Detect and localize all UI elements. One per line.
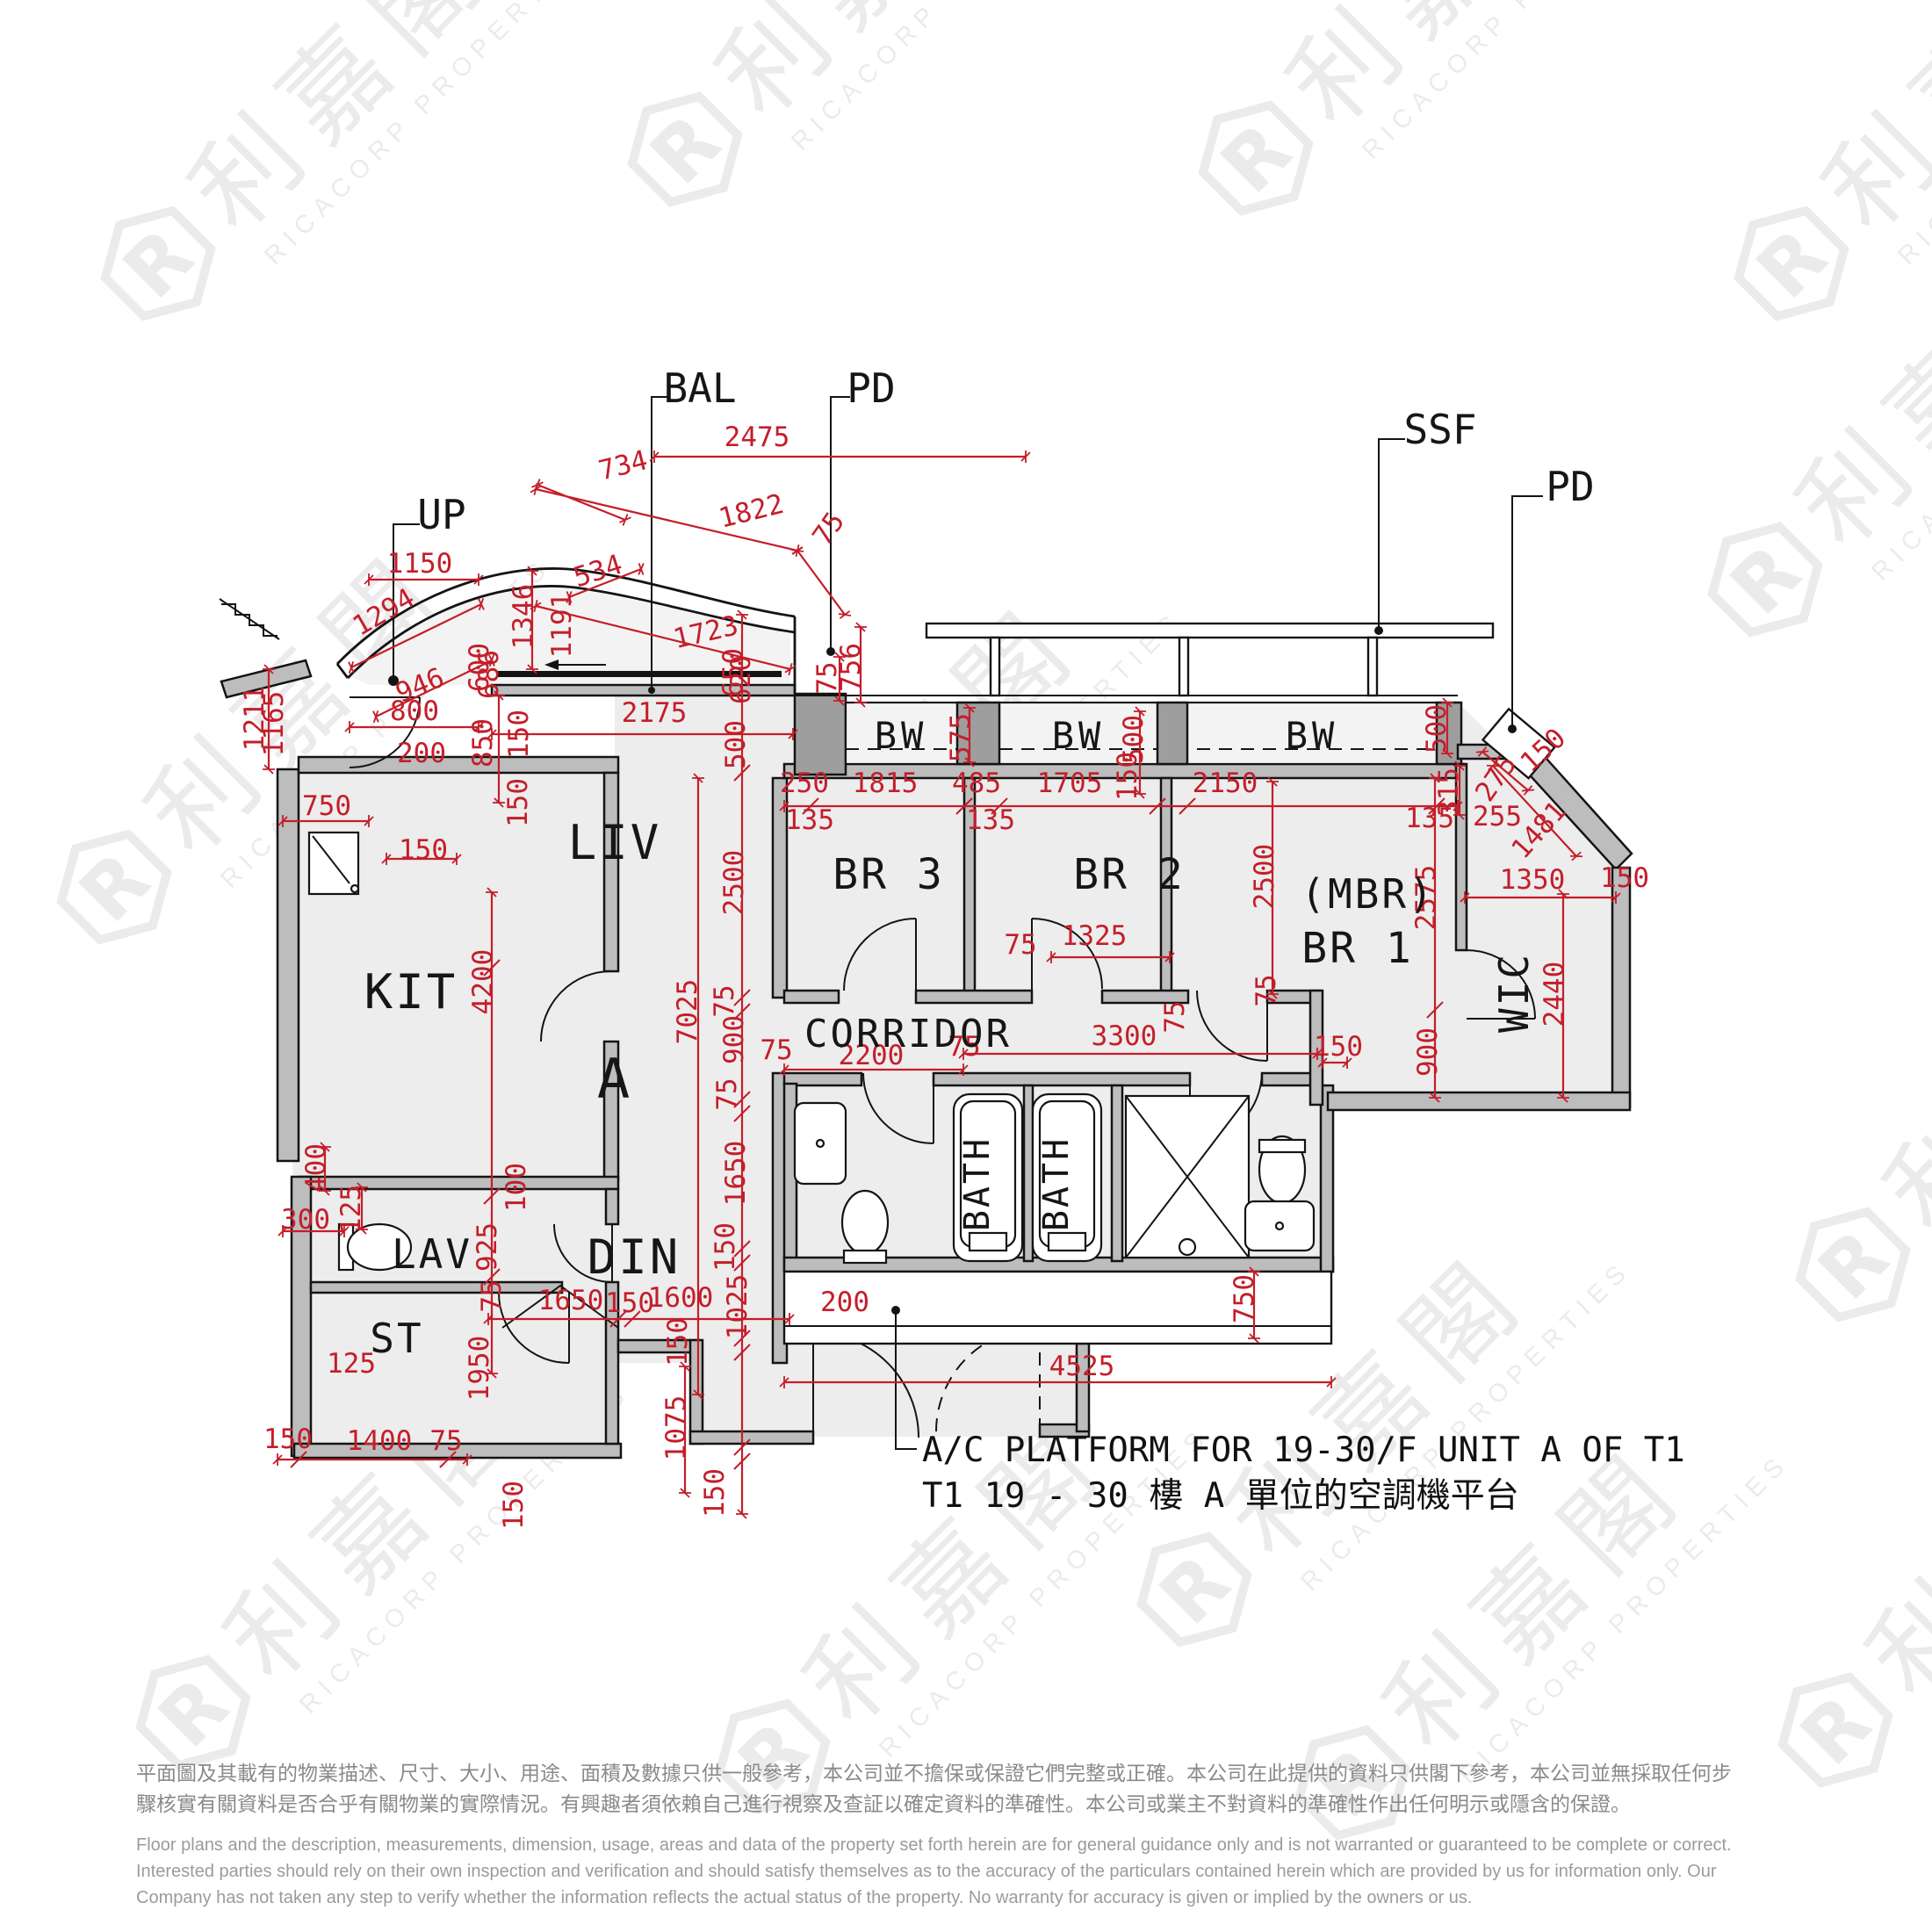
room-lav: LAV: [392, 1230, 472, 1278]
dimension-label: 900: [718, 1015, 750, 1064]
dimension-label: 1650: [538, 1285, 604, 1316]
dimension-label: 150: [1600, 862, 1649, 894]
dimension-label: 2440: [1539, 962, 1570, 1027]
room-br1: BR 1: [1301, 924, 1414, 973]
dimension-label: 734: [595, 444, 651, 487]
dimension-label: 800: [390, 696, 439, 727]
room-br3: BR 3: [833, 850, 945, 899]
dimension-label: 150: [498, 1481, 530, 1530]
label-pd-right: PD: [1546, 463, 1594, 510]
floorplan-svg: R 利嘉閣 RICACORP PROPERTIES: [0, 0, 1932, 1932]
dimension-label: 1150: [387, 548, 453, 580]
dimension-label: 125: [327, 1348, 376, 1380]
dimension-label: 150: [399, 834, 448, 866]
dimension-label: 686: [473, 650, 505, 699]
dimension-label: 900: [1412, 1027, 1444, 1077]
dimension-label: 4525: [1049, 1351, 1115, 1382]
dimension-label: 150: [699, 1468, 731, 1517]
dimension-label: 620: [725, 655, 757, 704]
dimension-label: 756: [835, 643, 867, 692]
room-wic: WIC: [1490, 952, 1538, 1033]
label-bal: BAL: [663, 364, 736, 412]
dimension-label: 1350: [1500, 864, 1566, 896]
dimension-label: 75: [1251, 974, 1282, 1006]
dimension-label: 1165: [258, 691, 290, 757]
dimension-label: 534: [570, 549, 626, 595]
dimension-label: 500: [720, 720, 752, 769]
disclaimer-en-line1: Floor plans and the description, measure…: [136, 1835, 1732, 1856]
dimension-label: 250: [780, 768, 829, 799]
dimension-label: 75: [1004, 929, 1036, 961]
dimension-label: 2150: [1193, 768, 1258, 799]
dimension-label: 150: [503, 710, 535, 759]
dimension-label: 75: [806, 507, 851, 551]
dimension-label: 1346: [508, 584, 539, 650]
label-up: UP: [417, 491, 465, 538]
dimension-label: 150: [502, 778, 534, 827]
dimension-label: 150: [710, 1222, 741, 1272]
dimension-label: 300: [281, 1204, 330, 1236]
dimension-label: 315: [1433, 768, 1465, 817]
dimension-label: 2475: [724, 422, 790, 453]
floorplan-page: R 利嘉閣 RICACORP PROPERTIES: [0, 0, 1932, 1932]
dimension-label: 850: [467, 718, 499, 768]
dimension-label: 125: [335, 1185, 367, 1234]
dimension-label: 255: [1473, 801, 1522, 833]
dimension-label: 1822: [716, 488, 787, 535]
dimension-label: 3300: [1092, 1020, 1157, 1052]
disclaimer-en-line2: Interested parties should rely on their …: [136, 1862, 1716, 1882]
dimension-label: 4200: [467, 949, 499, 1015]
dimension-label: 1600: [648, 1282, 714, 1314]
dimension-label: 75: [711, 1078, 743, 1110]
unit-letter: A: [597, 1047, 632, 1111]
ac-annotation-en: A/C PLATFORM FOR 19-30/F UNIT A OF T1: [922, 1431, 1685, 1470]
label-ssf: SSF: [1403, 406, 1476, 453]
dimension-label: 150: [605, 1287, 654, 1319]
dimension-label: 75: [476, 1280, 508, 1312]
room-liv: LIV: [568, 815, 662, 870]
dimension-label: 575: [945, 713, 977, 762]
dimension-label: 1950: [464, 1336, 495, 1402]
ssf-ledge: [926, 624, 1493, 638]
dimension-label: 7025: [672, 979, 703, 1045]
room-corridor: CORRIDOR: [804, 1012, 1012, 1056]
room-bath1: BATH: [957, 1136, 998, 1231]
dimension-label: 150: [662, 1317, 694, 1366]
dimension-label: 75: [709, 984, 740, 1017]
dimension-label: 750: [302, 790, 351, 822]
bw-3: BW: [1286, 714, 1339, 757]
dimension-label: 200: [397, 738, 446, 769]
dimension-label: 100: [501, 1163, 532, 1212]
bw-2: BW: [1052, 714, 1106, 757]
dimension-label: 75: [1159, 1000, 1191, 1033]
dimension-label: 2175: [622, 697, 688, 729]
room-bath2: BATH: [1036, 1136, 1077, 1231]
dimension-label: 200: [820, 1287, 869, 1318]
room-mbr: (MBR): [1301, 870, 1435, 918]
label-pd-top: PD: [847, 364, 895, 412]
room-kit: KIT: [364, 964, 458, 1020]
dimension-label: 150: [263, 1424, 313, 1455]
dimension-label: 1815: [853, 768, 919, 799]
dimension-label: 400: [300, 1143, 332, 1193]
dimension-label: 500: [1421, 704, 1453, 753]
room-br2: BR 2: [1073, 850, 1186, 899]
disclaimer-zh-line1: 平面圖及其載有的物業描述、尺寸、大小、用途、面積及數據只供一般參考，本公司並不擔…: [136, 1756, 1732, 1786]
dimension-label: 2500: [718, 850, 750, 916]
dimension-label: 1325: [1062, 920, 1128, 952]
bath1-toilet: [842, 1191, 888, 1254]
dimension-label: 1191: [546, 593, 578, 659]
dimension-label: 1400: [347, 1425, 413, 1457]
dimension-label: 485: [952, 768, 1001, 799]
dimension-label: 1705: [1037, 768, 1103, 799]
leader-labels: BALPDUPSSFPD: [417, 364, 1594, 538]
ac-annotation-zh: T1 19 - 30 樓 A 單位的空調機平台: [922, 1476, 1519, 1516]
dimension-label: 135: [966, 804, 1015, 836]
bw-1: BW: [875, 714, 928, 757]
dimension-label: 1650: [720, 1141, 752, 1207]
dimension-label: 750: [1229, 1274, 1260, 1323]
disclaimer-zh-line2: 驟核實有關資料是否合乎有關物業的實際情況。有興趣者須依賴自己進行視察及查証以確定…: [136, 1787, 1631, 1817]
dimension-label: 925: [472, 1222, 503, 1272]
dimension-label: 75: [760, 1034, 792, 1066]
room-din: DIN: [588, 1229, 681, 1285]
dimension-label: 1075: [660, 1395, 692, 1461]
dimension-label: 135: [785, 804, 834, 836]
dimension-label: 1025: [722, 1274, 753, 1340]
disclaimer-en-line3: Company has not taken any step to verify…: [136, 1888, 1472, 1908]
dimension-label: 75: [429, 1425, 462, 1457]
room-st: ST: [370, 1315, 423, 1362]
dimension-label: 150: [1314, 1031, 1363, 1063]
dimension-label: 2500: [1249, 844, 1280, 910]
dimension-label: 150: [1112, 752, 1143, 801]
